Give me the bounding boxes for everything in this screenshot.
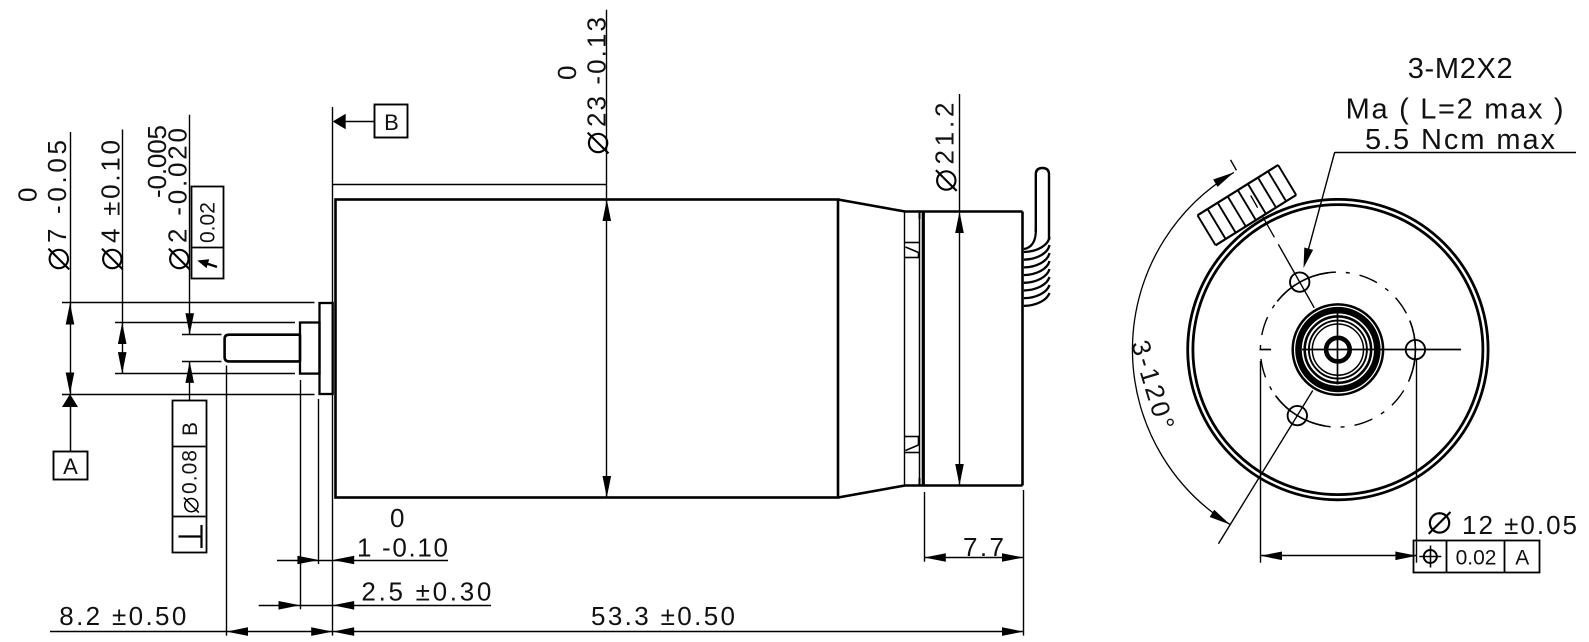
svg-text:53.3 ±0.50: 53.3 ±0.50 — [591, 601, 735, 631]
svg-text:B: B — [179, 422, 202, 436]
svg-text:3-120°: 3-120° — [1125, 336, 1181, 433]
svg-text:0: 0 — [390, 503, 404, 533]
svg-text:1 -0.10: 1 -0.10 — [357, 533, 448, 563]
svg-text:5.5 Ncm max: 5.5 Ncm max — [1365, 124, 1556, 156]
svg-text:0: 0 — [552, 66, 582, 80]
svg-text:0.08: 0.08 — [179, 450, 202, 494]
svg-text:0: 0 — [13, 188, 43, 202]
svg-text:B: B — [384, 110, 399, 135]
svg-text:7.7: 7.7 — [963, 532, 1004, 562]
svg-text:3-M2X2: 3-M2X2 — [1408, 53, 1513, 85]
svg-text:2.5 ±0.30: 2.5 ±0.30 — [361, 577, 491, 607]
svg-text:4 ±0.10: 4 ±0.10 — [96, 140, 126, 243]
svg-text:A: A — [1515, 547, 1529, 570]
svg-text:A: A — [63, 454, 78, 479]
svg-text:-0.005: -0.005 — [142, 125, 172, 198]
svg-text:21.2: 21.2 — [930, 103, 960, 165]
svg-text:8.2 ±0.50: 8.2 ±0.50 — [59, 601, 186, 631]
svg-text:0.02: 0.02 — [1456, 547, 1497, 570]
svg-text:0.02: 0.02 — [197, 202, 220, 243]
svg-text:Ma ( L=2 max ): Ma ( L=2 max ) — [1346, 94, 1564, 126]
svg-text:12 ±0.05: 12 ±0.05 — [1462, 510, 1577, 540]
svg-text:7 -0.05: 7 -0.05 — [42, 140, 72, 243]
